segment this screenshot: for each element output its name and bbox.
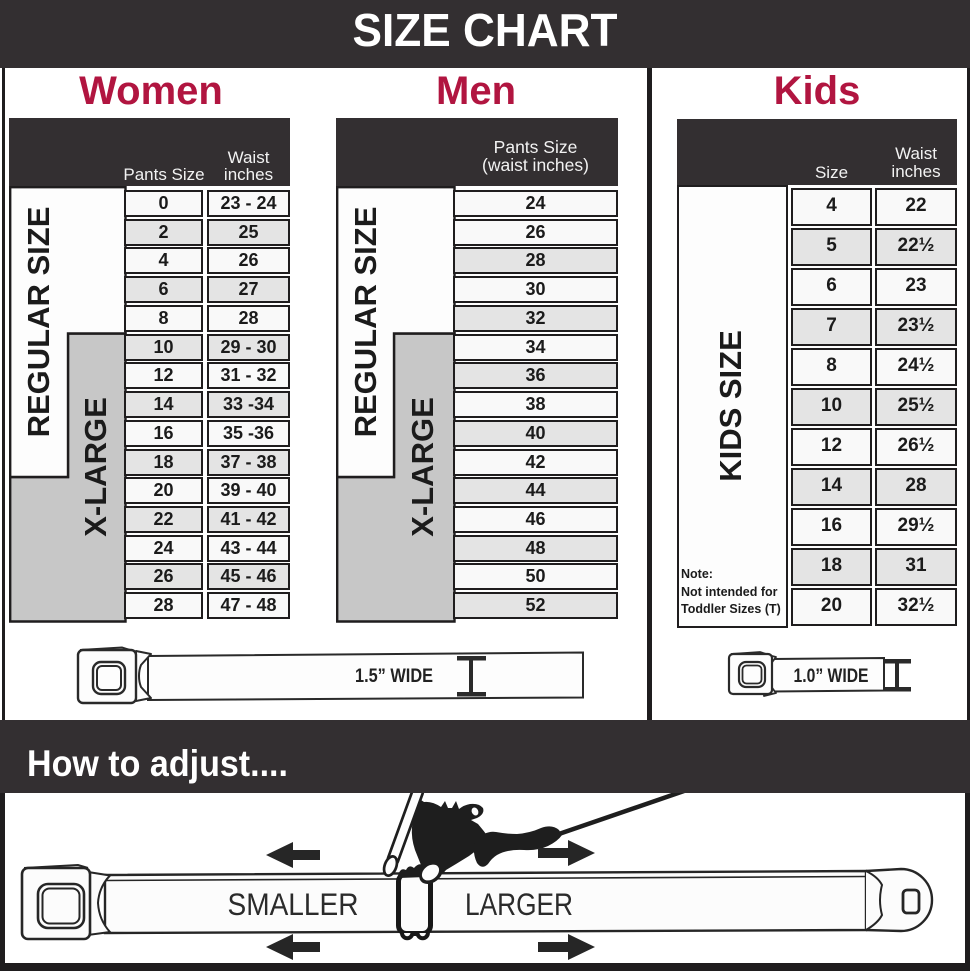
svg-text:SMALLER: SMALLER	[228, 886, 359, 922]
svg-text:1.0” WIDE: 1.0” WIDE	[794, 666, 869, 687]
svg-text:1.5” WIDE: 1.5” WIDE	[355, 666, 433, 687]
svg-text:LARGER: LARGER	[465, 886, 573, 922]
